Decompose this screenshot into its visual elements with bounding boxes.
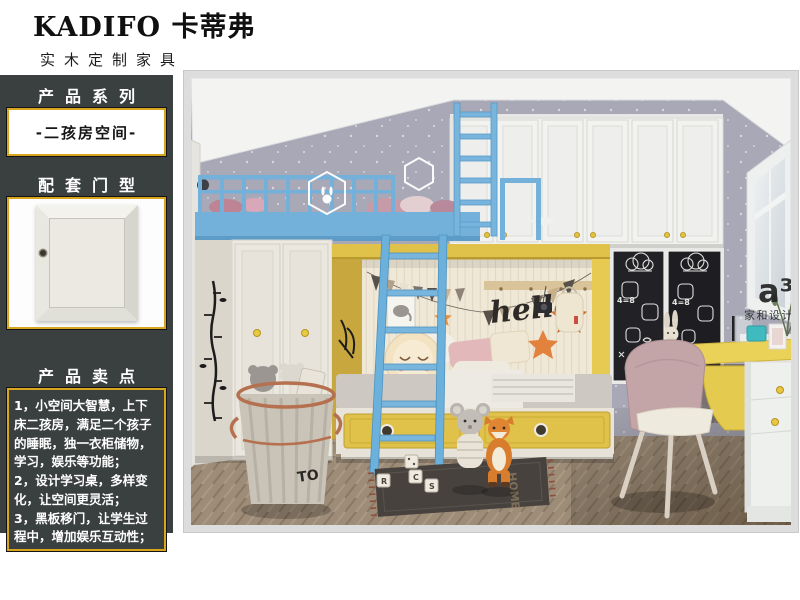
teal-box — [747, 326, 766, 341]
series-value-box: -二孩房空间- — [7, 108, 166, 156]
brand-title: KADIFO 卡蒂弗 — [33, 5, 255, 44]
striped-blanket — [491, 374, 575, 402]
cream-pillow — [490, 330, 531, 364]
wardrobe-knob-left — [254, 330, 261, 337]
sidebar: 产品系列 -二孩房空间- 配套门型 产品卖点 1，小空间大智慧，上下床二孩房，满… — [0, 75, 173, 533]
loft-pillow-4 — [400, 196, 434, 214]
wardrobe-knob-right — [302, 330, 309, 337]
watermark-logo: a³ — [758, 272, 791, 310]
door-type-header: 配套门型 — [0, 172, 173, 196]
tray — [531, 217, 555, 225]
selling-point-2: 2，设计学习桌，多样变化，让空间更灵活； — [14, 472, 159, 510]
selling-points-header: 产品卖点 — [0, 363, 173, 387]
selling-points-box: 1，小空间大智慧，上下床二孩房，满足二个孩子的睡眠，独一衣柜储物，学习，娱乐等功… — [7, 388, 166, 551]
chair-cushion — [637, 408, 713, 436]
hanging-bag — [556, 287, 583, 332]
door-panel-image — [36, 205, 138, 321]
chalk-equation-left: 4=8 — [617, 296, 635, 305]
svg-text:C: C — [413, 473, 419, 482]
brand-logo: KADIFO 卡蒂弗 实木定制家具 — [33, 5, 255, 70]
watermark-text: 家和设计 — [744, 308, 791, 322]
loft-platform — [195, 212, 480, 240]
door-thumbnail-box — [7, 197, 166, 329]
pen — [732, 316, 735, 341]
series-header: 产品系列 — [0, 83, 173, 107]
chalk-equation-right: 4=8 — [672, 298, 690, 307]
room-illustration: 4=8 123 4=8 123 — [191, 78, 791, 525]
selling-point-1: 1，小空间大智慧，上下床二孩房，满足二个孩子的睡眠，独一衣柜储物，学习，娱乐等功… — [14, 397, 159, 472]
door-knob — [40, 250, 46, 256]
svg-text:R: R — [381, 477, 387, 486]
brand-subtitle: 实木定制家具 — [40, 49, 255, 70]
basket-label: TO — [296, 467, 320, 486]
selling-point-3: 3，黑板移门，让学生过程中，增加娱乐互动性； — [14, 510, 159, 548]
right-cabinet — [745, 362, 791, 522]
room-photo: 4=8 123 4=8 123 — [183, 70, 799, 533]
svg-text:S: S — [429, 482, 435, 491]
